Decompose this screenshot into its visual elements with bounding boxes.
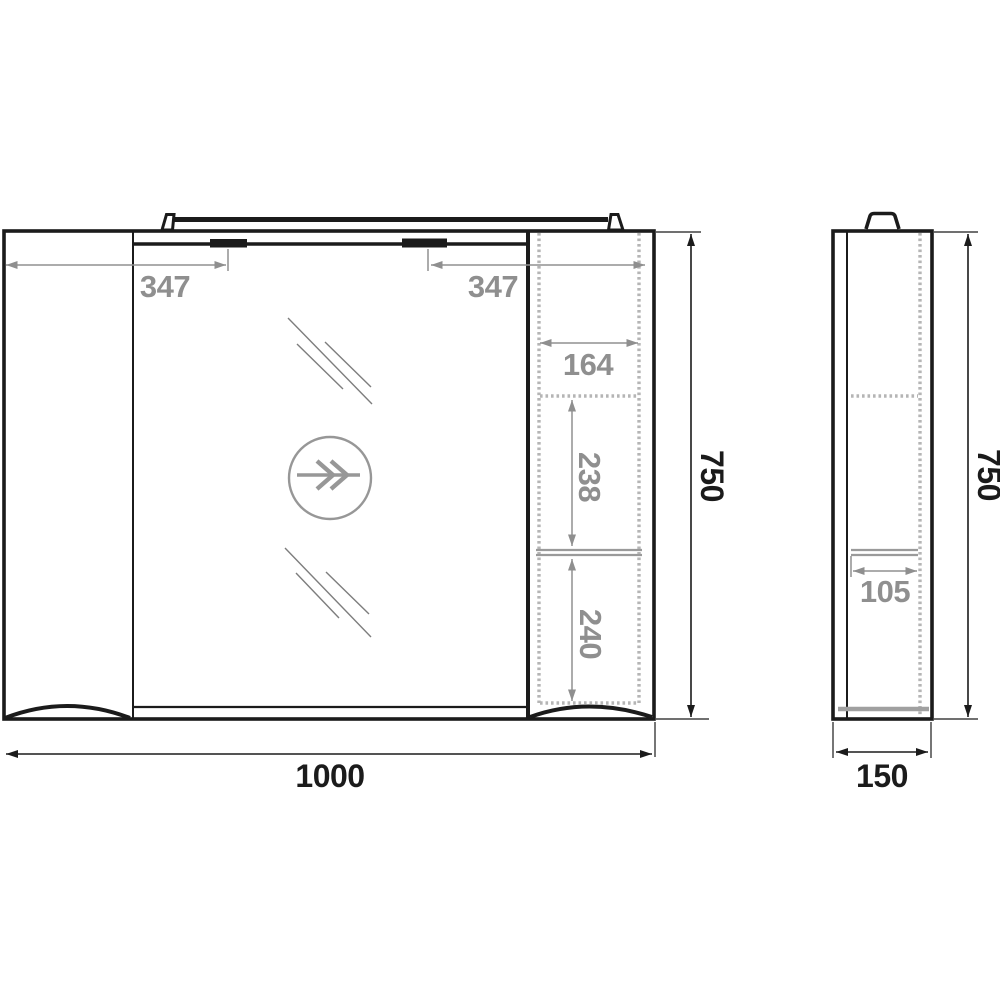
dim-label-side-depth: 150 xyxy=(856,758,908,794)
dim-label-bottom-shelf-height: 240 xyxy=(573,609,608,659)
dim-label-front-width: 1000 xyxy=(295,758,364,794)
dim-label-front-height: 750 xyxy=(694,450,730,502)
dim-label-right-light-offset: 347 xyxy=(468,269,518,304)
dim-label-side-height: 750 xyxy=(971,449,1000,501)
dim-label-inner-shelf-depth: 105 xyxy=(860,574,910,609)
dim-label-middle-shelf-height: 238 xyxy=(572,452,607,502)
mirror-cabinet-drawing: 347 347 164 238 240 750 1000 xyxy=(0,0,1000,1000)
spotlight-right-icon xyxy=(402,239,447,248)
front-view: 347 347 164 238 240 750 1000 xyxy=(4,215,730,795)
light-strip-profile-icon xyxy=(866,214,899,230)
dim-label-shelf-width: 164 xyxy=(563,347,614,382)
dim-label-left-light-offset: 347 xyxy=(140,269,190,304)
technical-drawing-canvas: 347 347 164 238 240 750 1000 xyxy=(0,0,1000,1000)
spotlight-left-icon xyxy=(210,239,247,248)
